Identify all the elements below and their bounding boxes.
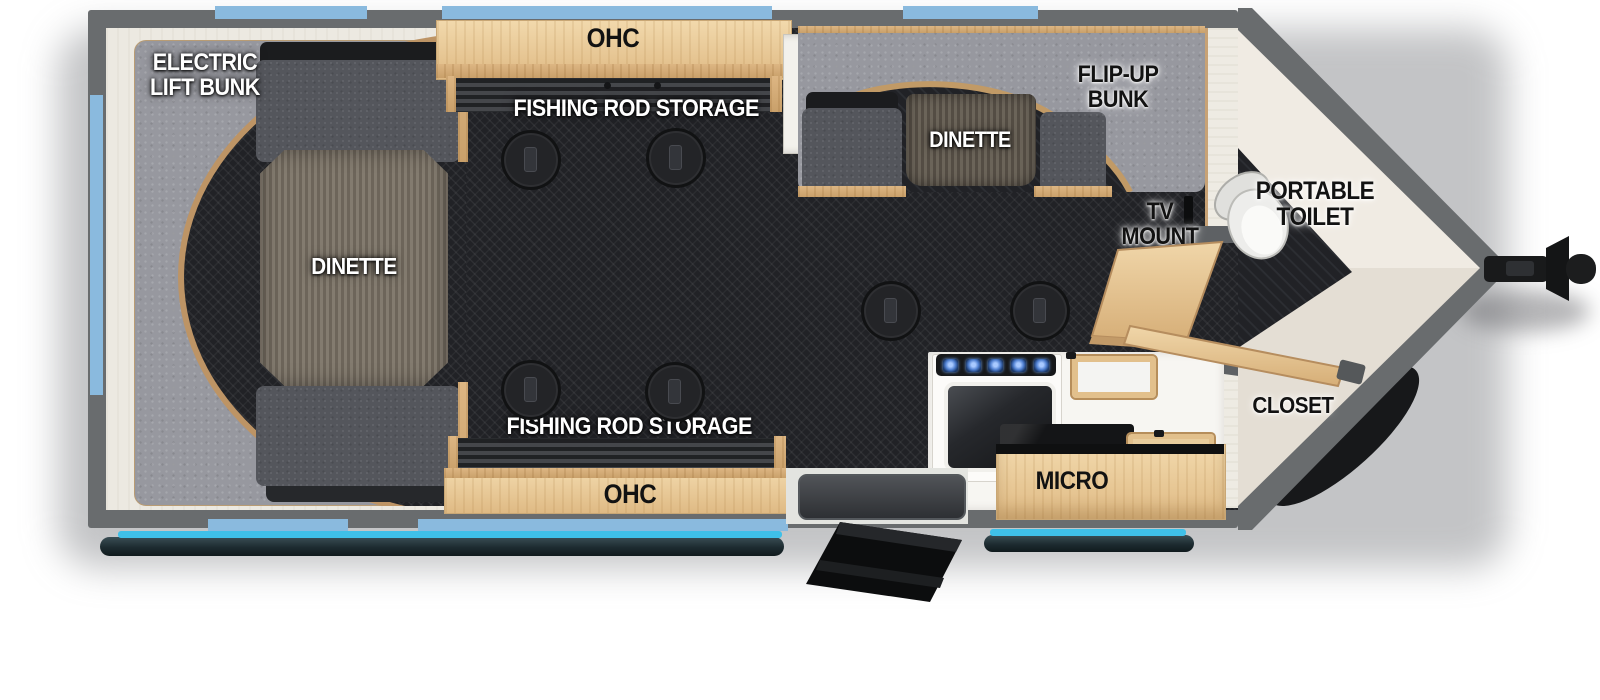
bath-door (1092, 242, 1222, 342)
hitch (1484, 236, 1596, 301)
floorplan-canvas: DINETTE ELECTRIC LIFT BUNK OHC FISHING R… (0, 0, 1600, 700)
portable-toilet-label: PORTABLE TOILET (1252, 178, 1378, 231)
closet-label: CLOSET (1244, 393, 1343, 417)
nose-section (0, 0, 1600, 700)
